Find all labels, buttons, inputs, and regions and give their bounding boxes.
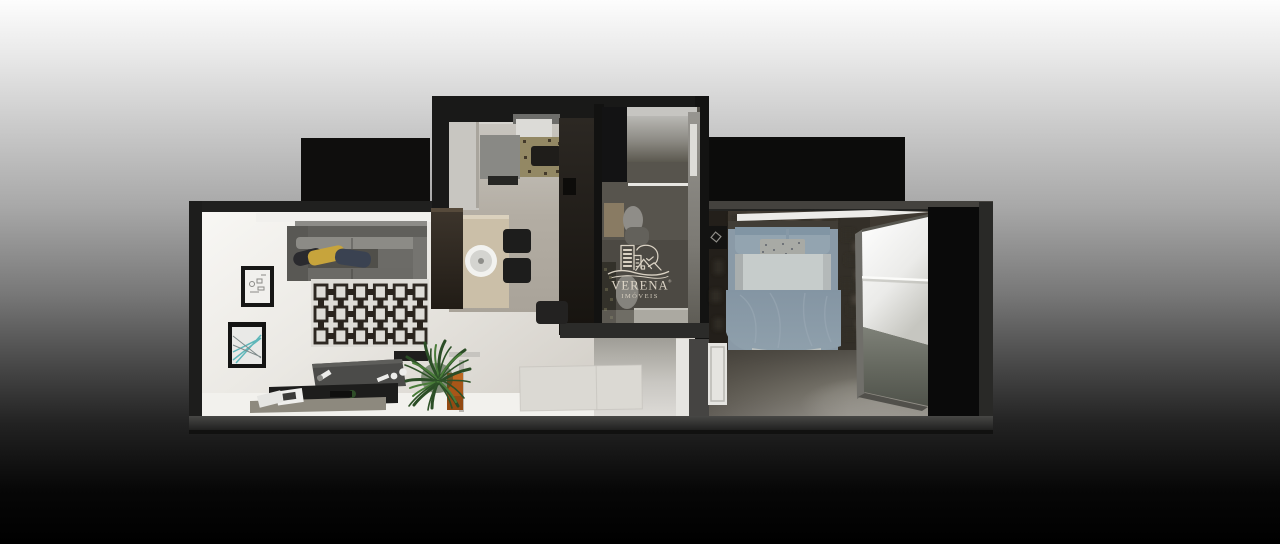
svg-text:IMÓVEIS: IMÓVEIS — [621, 292, 659, 300]
svg-text:®: ® — [668, 279, 672, 284]
svg-text:VERENA: VERENA — [611, 278, 668, 292]
